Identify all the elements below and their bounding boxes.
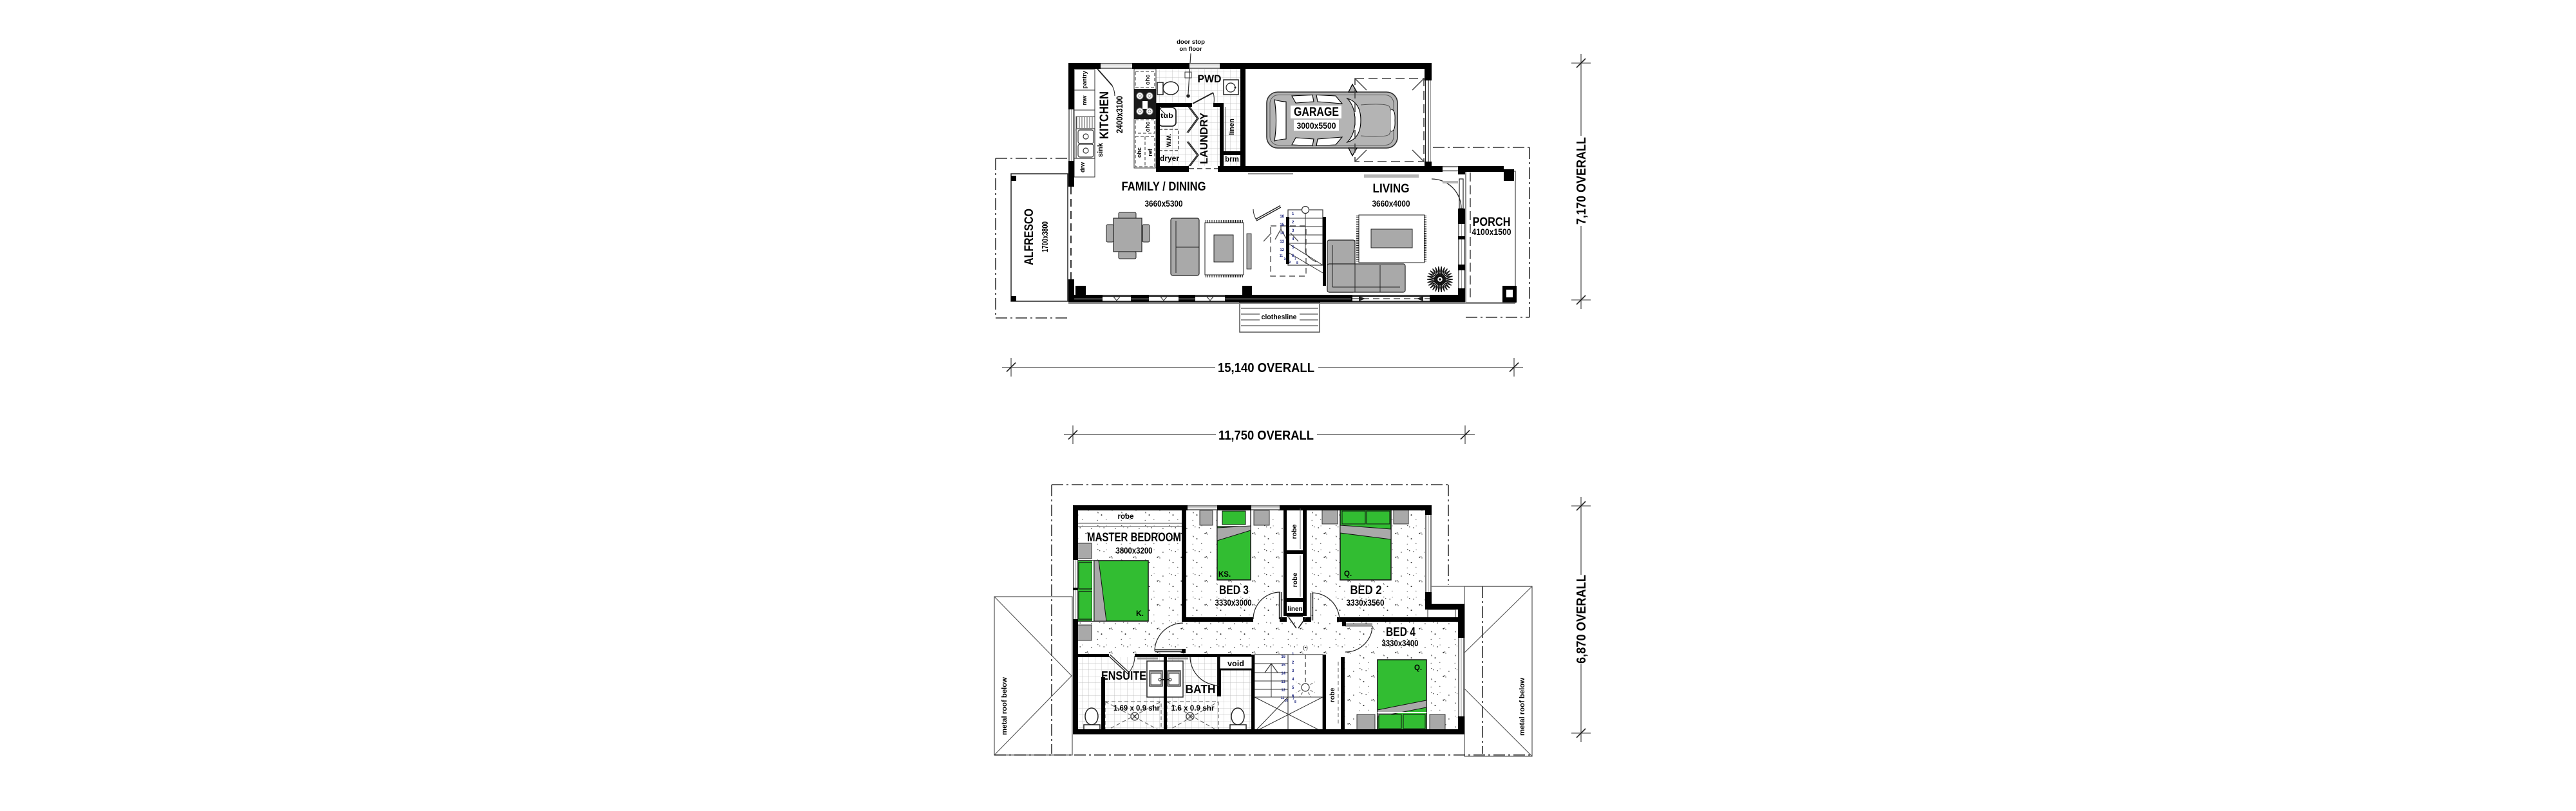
svg-text:8: 8 [1294,700,1296,704]
svg-text:BED 2: BED 2 [1350,584,1382,597]
svg-text:2400x3100: 2400x3100 [1115,96,1124,133]
svg-text:13: 13 [1281,680,1285,684]
svg-text:door stop: door stop [1177,39,1205,46]
svg-text:K.: K. [1136,609,1144,618]
svg-text:LIVING: LIVING [1373,182,1410,196]
svg-text:ALFRESCO: ALFRESCO [1023,209,1036,265]
svg-text:1700x3800: 1700x3800 [1040,221,1050,252]
svg-text:1.6 x 0.9 shr: 1.6 x 0.9 shr [1171,704,1215,713]
svg-text:LAUNDRY: LAUNDRY [1198,112,1210,164]
svg-text:12: 12 [1281,689,1285,693]
svg-text:robe: robe [1329,687,1336,702]
svg-text:7,170 OVERALL: 7,170 OVERALL [1575,137,1589,225]
svg-text:KS.: KS. [1218,571,1231,579]
svg-text:PWD: PWD [1198,73,1222,85]
svg-text:6,870 OVERALL: 6,870 OVERALL [1575,575,1589,664]
svg-text:15,140 OVERALL: 15,140 OVERALL [1218,361,1314,375]
svg-text:ohc: ohc [1136,147,1142,158]
svg-text:metal roof below: metal roof below [1519,678,1526,736]
svg-text:14: 14 [1280,232,1284,236]
svg-text:drw: drw [1079,162,1086,172]
svg-text:on floor: on floor [1179,46,1202,53]
svg-text:3000x5500: 3000x5500 [1297,121,1336,131]
svg-text:16: 16 [1281,655,1285,659]
svg-text:3330x3400: 3330x3400 [1382,639,1419,648]
svg-text:8: 8 [1296,261,1298,265]
svg-text:15: 15 [1281,664,1285,667]
svg-text:Q.: Q. [1414,664,1422,672]
svg-text:1.69 x 0.9 shr: 1.69 x 0.9 shr [1113,704,1160,713]
svg-text:robe: robe [1291,572,1299,587]
svg-text:W.M.: W.M. [1166,134,1172,147]
svg-text:sink: sink [1097,142,1104,157]
svg-text:3660x4000: 3660x4000 [1372,199,1410,209]
svg-text:BED 4: BED 4 [1386,626,1416,639]
svg-text:robe: robe [1118,513,1134,521]
svg-text:brm: brm [1225,156,1239,163]
svg-text:GARAGE: GARAGE [1294,106,1339,119]
svg-text:ref: ref [1147,148,1153,156]
svg-text:FAMILY / DINING: FAMILY / DINING [1122,180,1206,194]
svg-text:BED 3: BED 3 [1219,584,1249,597]
svg-text:linen: linen [1228,118,1236,135]
svg-text:11,750 OVERALL: 11,750 OVERALL [1218,429,1314,443]
svg-text:Q.: Q. [1344,570,1352,578]
svg-text:pantry: pantry [1081,71,1088,89]
svg-text:3330x3560: 3330x3560 [1347,598,1385,608]
svg-text:MASTER BEDROOM: MASTER BEDROOM [1087,531,1181,545]
svg-text:clothesline: clothesline [1262,313,1297,321]
svg-text:dryer: dryer [1160,155,1180,163]
svg-text:3660x5300: 3660x5300 [1145,199,1183,209]
svg-text:ohc: ohc [1144,122,1151,132]
svg-text:16: 16 [1280,215,1284,219]
svg-text:3800x3200: 3800x3200 [1116,546,1153,555]
svg-text:ohc: ohc [1144,75,1151,85]
svg-text:15: 15 [1280,223,1284,227]
svg-text:13: 13 [1280,240,1284,244]
svg-text:11: 11 [1280,254,1283,258]
svg-text:mw: mw [1081,95,1088,106]
svg-text:10: 10 [1284,699,1288,703]
svg-text:14: 14 [1281,672,1285,676]
svg-text:11: 11 [1281,696,1285,700]
svg-text:4100x1500: 4100x1500 [1472,227,1511,237]
svg-text:robe: robe [1291,524,1298,539]
svg-text:3330x3000: 3330x3000 [1215,598,1252,608]
svg-text:BATH: BATH [1186,683,1216,696]
svg-text:ENSUITE: ENSUITE [1101,669,1146,682]
svg-text:linen: linen [1287,606,1302,613]
svg-text:KITCHEN: KITCHEN [1098,91,1112,139]
svg-text:12: 12 [1280,248,1284,252]
svg-text:metal roof below: metal roof below [1001,677,1009,735]
svg-text:void: void [1227,659,1244,668]
